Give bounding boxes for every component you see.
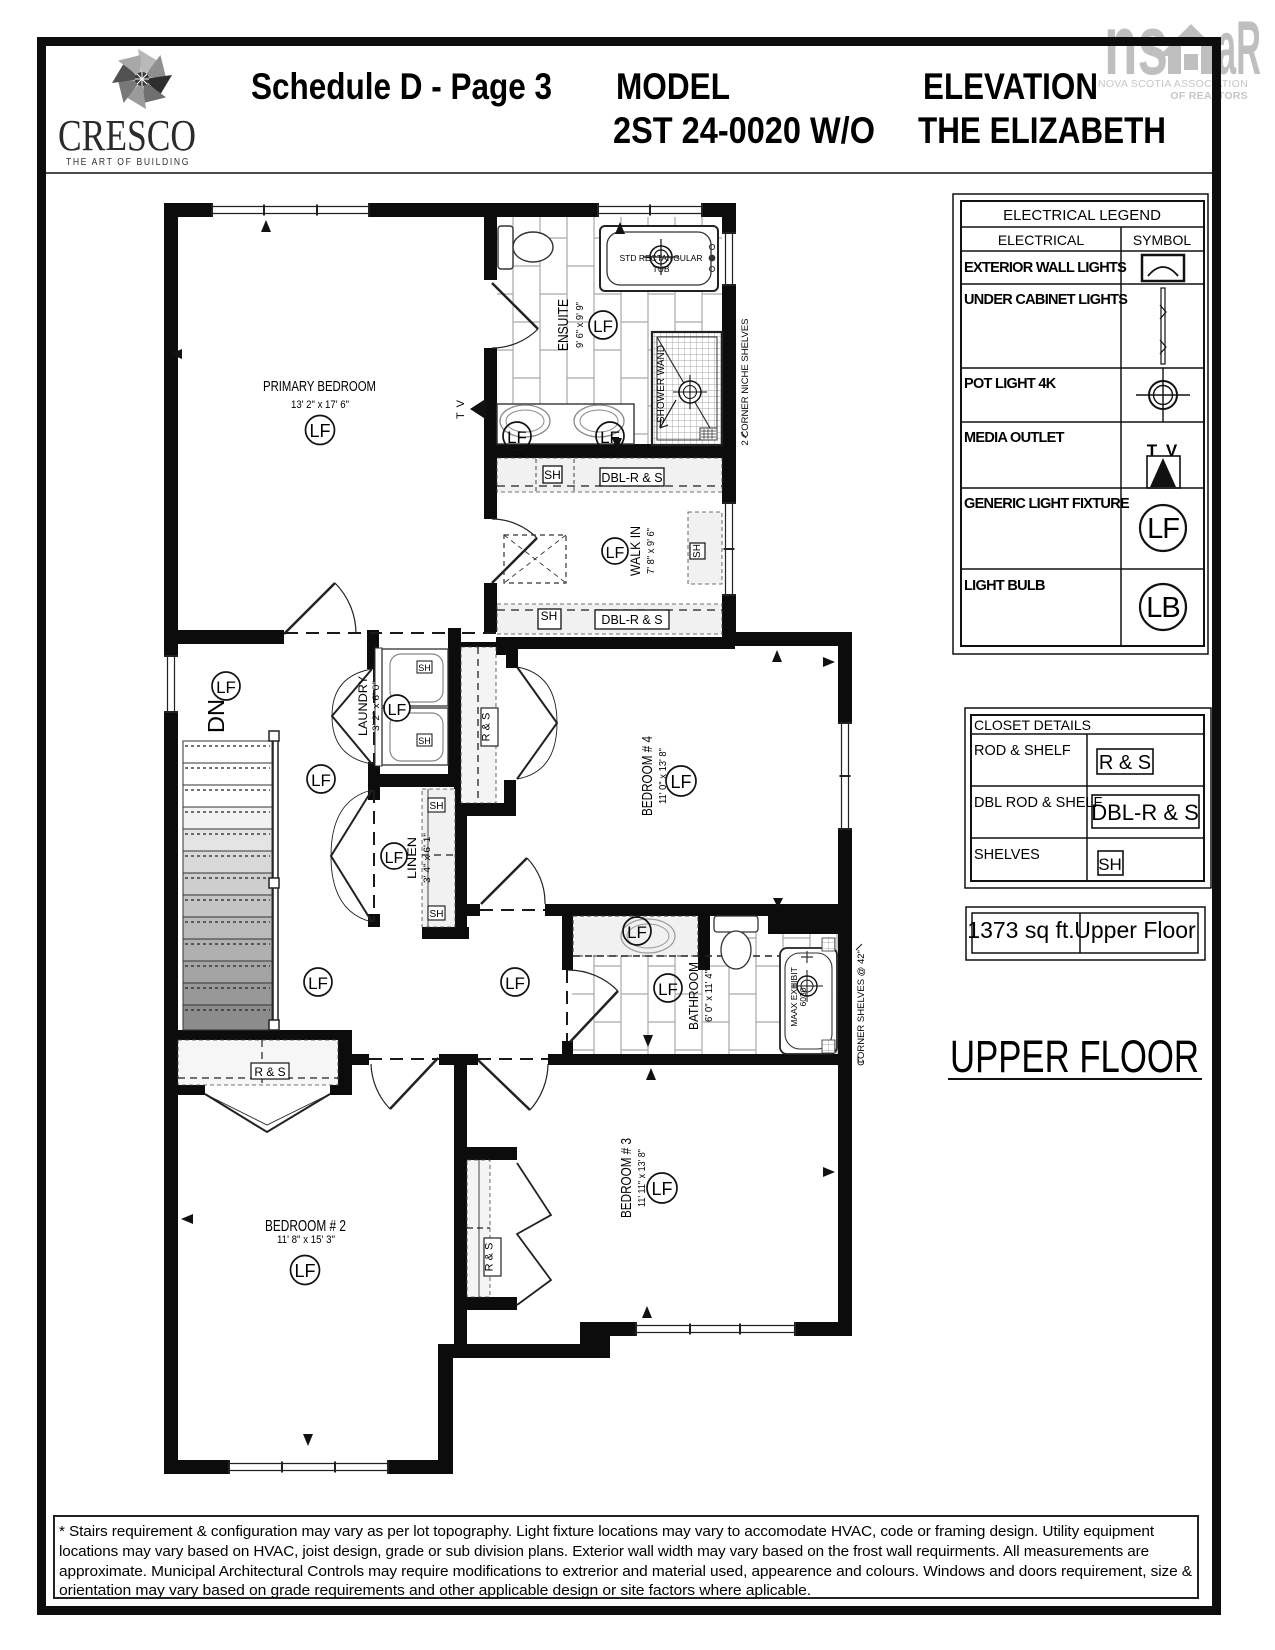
svg-text:ROD & SHELF: ROD & SHELF (974, 743, 1071, 759)
svg-text:LF: LF (309, 421, 330, 441)
svg-text:2 CORNER NICHE SHELVES: 2 CORNER NICHE SHELVES (740, 318, 751, 445)
svg-text:GENERIC LIGHT FIXTURE: GENERIC LIGHT FIXTURE (964, 496, 1130, 512)
svg-text:9' 6" x 9' 9": 9' 6" x 9' 9" (574, 302, 586, 348)
svg-text:R & S: R & S (1099, 752, 1151, 774)
svg-text:BEDROOM # 4: BEDROOM # 4 (639, 736, 656, 816)
svg-text:LF: LF (593, 317, 613, 336)
svg-text:LF: LF (308, 974, 328, 993)
svg-text:OF REALTORS: OF REALTORS (1170, 90, 1248, 102)
svg-text:EXTERIOR WALL LIGHTS: EXTERIOR WALL LIGHTS (964, 260, 1127, 276)
svg-text:7' 8" x 9' 6": 7' 8" x 9' 6" (646, 528, 657, 574)
svg-text:SHELVES: SHELVES (974, 847, 1040, 863)
svg-text:MEDIA OUTLET: MEDIA OUTLET (964, 430, 1065, 446)
svg-text:approximate. Municipal Archite: approximate. Municipal Architectural Con… (59, 1563, 1192, 1580)
svg-text:SH: SH (418, 663, 431, 673)
svg-text:LIGHT BULB: LIGHT BULB (964, 578, 1045, 594)
svg-text:LF: LF (311, 771, 331, 790)
svg-text:DBL-R & S: DBL-R & S (1091, 800, 1199, 825)
svg-text:3' 4" x 6' 1": 3' 4" x 6' 1" (422, 833, 433, 883)
svg-text:SH: SH (430, 801, 444, 812)
svg-text:CLOSET DETAILS: CLOSET DETAILS (974, 717, 1091, 733)
svg-text:LF: LF (651, 1179, 672, 1199)
svg-text:ENSUITE: ENSUITE (556, 299, 572, 351)
svg-text:Schedule D - Page 3: Schedule D - Page 3 (251, 66, 552, 107)
svg-text:T V: T V (455, 399, 467, 419)
svg-text:LF: LF (294, 1261, 315, 1281)
svg-text:DBL-R & S: DBL-R & S (601, 613, 662, 627)
svg-text:* Stairs requirement & configu: * Stairs requirement & configuration may… (59, 1523, 1155, 1540)
svg-text:UNDER CABINET LIGHTS: UNDER CABINET LIGHTS (964, 292, 1128, 308)
svg-text:ELECTRICAL LEGEND: ELECTRICAL LEGEND (1003, 207, 1161, 224)
svg-text:DBL-R & S: DBL-R & S (601, 471, 662, 485)
svg-text:SH: SH (544, 468, 561, 482)
svg-text:3' 2" x 6' 0": 3' 2" x 6' 0" (371, 681, 382, 731)
svg-text:LF: LF (1147, 513, 1179, 545)
svg-text:R & S: R & S (254, 1065, 285, 1079)
svg-text:POT LIGHT 4K: POT LIGHT 4K (964, 376, 1057, 392)
svg-text:ELECTRICAL: ELECTRICAL (998, 232, 1085, 248)
svg-text:LF: LF (670, 772, 691, 792)
svg-text:R & S: R & S (481, 713, 493, 742)
svg-text:LF: LF (216, 678, 236, 697)
svg-text:MODEL: MODEL (616, 66, 730, 107)
svg-text:BEDROOM # 2: BEDROOM # 2 (265, 1218, 346, 1235)
svg-text:Upper Floor: Upper Floor (1074, 917, 1196, 943)
svg-text:CRESCO: CRESCO (58, 111, 196, 160)
svg-text:CORNER SHELVES @ 42": CORNER SHELVES @ 42" (856, 950, 867, 1066)
svg-text:SYMBOL: SYMBOL (1133, 232, 1192, 248)
svg-text:LF: LF (507, 428, 527, 447)
svg-text:13' 2" x 17' 6": 13' 2" x 17' 6" (291, 399, 349, 411)
svg-text:LAUNDRY: LAUNDRY (356, 676, 370, 736)
svg-text:LF: LF (505, 974, 525, 993)
svg-text:SH: SH (430, 909, 444, 920)
svg-text:SH: SH (541, 609, 558, 623)
svg-text:T V: T V (1147, 441, 1179, 460)
svg-text:LF: LF (388, 702, 407, 719)
svg-text:NOVA SCOTIA ASSOCIATION: NOVA SCOTIA ASSOCIATION (1098, 78, 1248, 90)
svg-text:LF: LF (606, 545, 625, 562)
svg-text:BEDROOM # 3: BEDROOM # 3 (618, 1138, 635, 1218)
svg-text:DBL ROD & SHELF: DBL ROD & SHELF (974, 795, 1103, 811)
svg-text:WALK IN: WALK IN (628, 526, 643, 576)
svg-text:2ST 24-0020 W/O: 2ST 24-0020 W/O (613, 110, 875, 151)
svg-text:THE ART OF BUILDING: THE ART OF BUILDING (66, 156, 190, 168)
svg-text:BATHROOM: BATHROOM (686, 962, 701, 1030)
svg-text:locations may vary based on HV: locations may vary based on HVAC, joist … (59, 1543, 1149, 1560)
svg-text:LF: LF (658, 980, 678, 999)
svg-text:R & S: R & S (484, 1243, 496, 1272)
svg-text:11' 11" x 13' 8": 11' 11" x 13' 8" (636, 1149, 648, 1207)
svg-text:1373 sq ft.: 1373 sq ft. (967, 917, 1074, 943)
svg-text:LF: LF (627, 923, 647, 942)
svg-text:THE ELIZABETH: THE ELIZABETH (918, 110, 1166, 151)
svg-text:PRIMARY BEDROOM: PRIMARY BEDROOM (263, 378, 376, 395)
svg-text:SH: SH (1098, 855, 1122, 874)
svg-text:SH: SH (418, 736, 431, 746)
svg-text:6030: 6030 (798, 987, 808, 1006)
svg-text:DN: DN (203, 699, 229, 733)
svg-text:LB: LB (1146, 592, 1179, 624)
svg-text:6' 0" x 11' 4": 6' 0" x 11' 4" (704, 970, 715, 1022)
svg-text:UPPER FLOOR: UPPER FLOOR (950, 1031, 1199, 1082)
svg-text:11' 8" x 15' 3": 11' 8" x 15' 3" (277, 1234, 335, 1246)
svg-text:ELEVATION: ELEVATION (923, 66, 1098, 107)
svg-text:LF: LF (385, 850, 404, 867)
svg-text:SHOWER WAND: SHOWER WAND (656, 345, 667, 423)
svg-text:orientation may vary based on: orientation may vary based on grade requ… (59, 1582, 811, 1599)
svg-text:SH: SH (692, 544, 703, 558)
